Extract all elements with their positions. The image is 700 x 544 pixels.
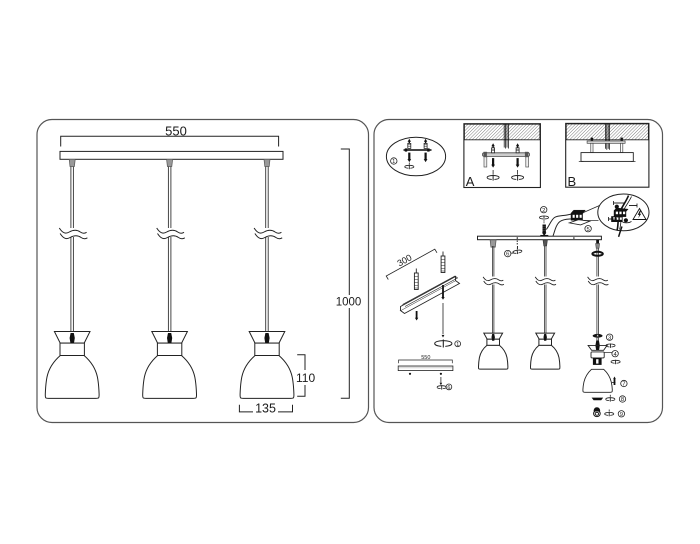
svg-text:2: 2 xyxy=(542,208,545,214)
svg-text:9: 9 xyxy=(620,412,623,418)
svg-text:6: 6 xyxy=(506,252,509,258)
svg-text:550: 550 xyxy=(165,123,187,138)
svg-text:5: 5 xyxy=(586,227,589,233)
svg-text:B: B xyxy=(568,174,577,189)
svg-text:3: 3 xyxy=(608,335,611,341)
svg-text:1: 1 xyxy=(392,159,395,165)
svg-text:6: 6 xyxy=(447,385,450,391)
svg-text:8: 8 xyxy=(621,397,624,403)
svg-text:A: A xyxy=(466,174,475,189)
svg-text:550: 550 xyxy=(421,355,430,361)
svg-text:1: 1 xyxy=(456,342,459,348)
svg-text:7: 7 xyxy=(622,382,625,388)
svg-text:135: 135 xyxy=(255,402,276,416)
svg-text:110: 110 xyxy=(296,371,315,385)
svg-text:1000: 1000 xyxy=(336,296,362,308)
